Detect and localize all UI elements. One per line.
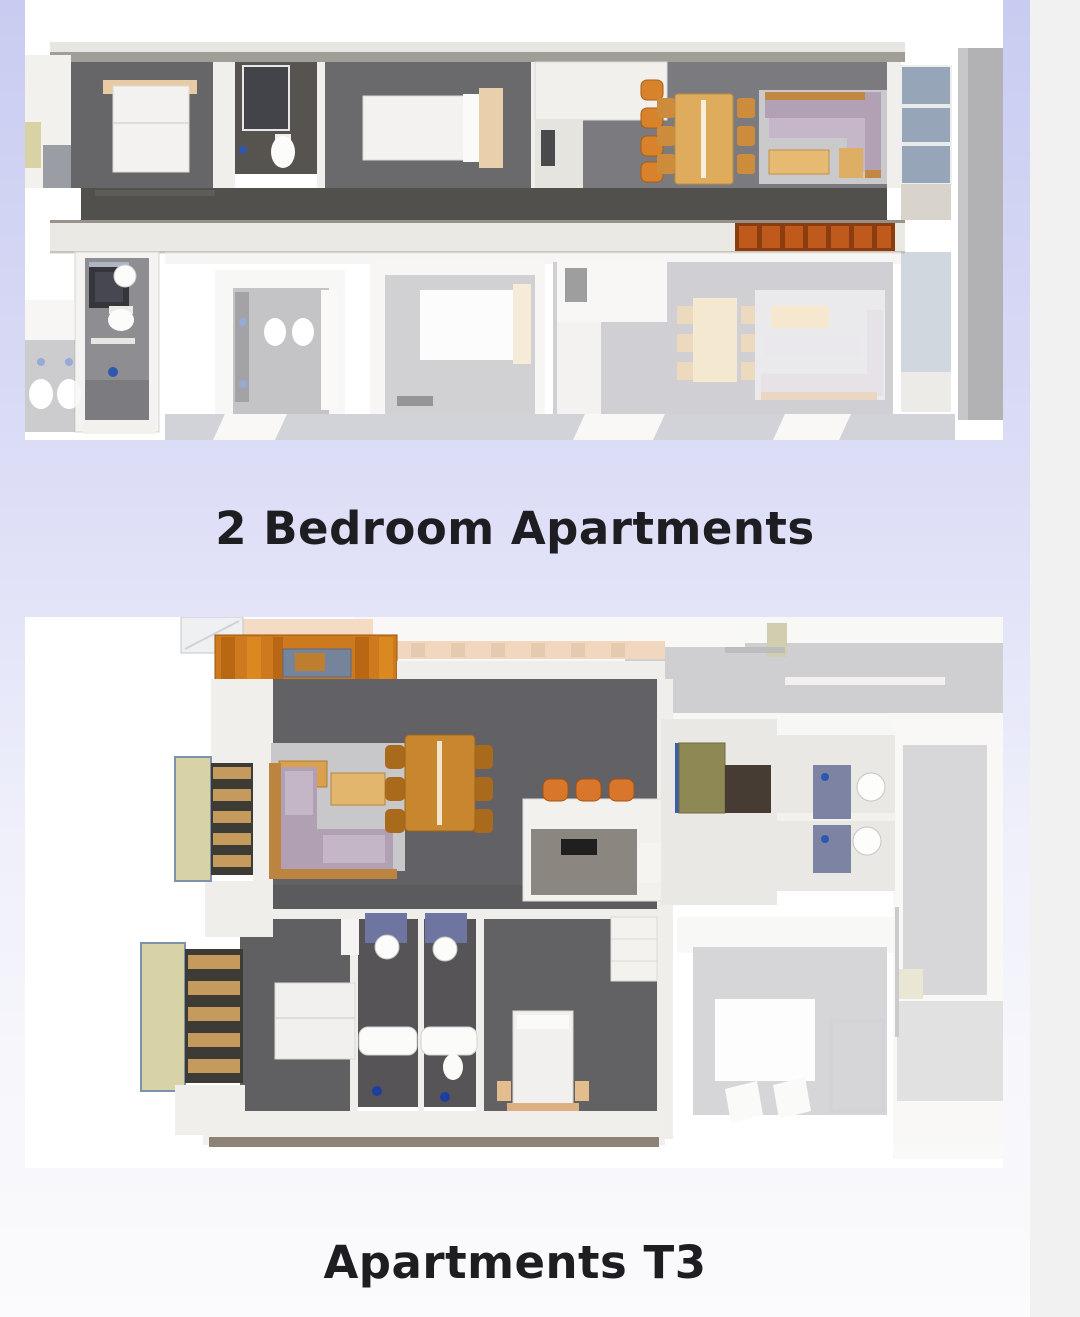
- two-bedroom-plan-svg: [25, 0, 1003, 440]
- balcony-glazing: [901, 66, 951, 220]
- heading-apartments-t3: Apartments T3: [323, 1236, 706, 1289]
- wood-bench: [735, 223, 895, 251]
- top-exterior-wall: [50, 42, 905, 62]
- balcony-shutter-upper: [175, 757, 253, 881]
- bottom-exterior-wall: [203, 1111, 665, 1147]
- side-bathroom: [75, 252, 159, 434]
- neighbor-building-right: [958, 48, 1003, 420]
- hallway-closets: [661, 719, 777, 905]
- dining-table: [657, 94, 755, 184]
- bed-2: [363, 88, 503, 168]
- sofa-area: [759, 90, 887, 184]
- left-edge-adjacent-unit: [25, 55, 71, 188]
- right-gutter: [1030, 0, 1080, 1317]
- caption-band-1: 2 Bedroom Apartments: [0, 440, 1030, 617]
- heading-2-bedroom-apartments: 2 Bedroom Apartments: [215, 502, 814, 555]
- floor-plan-image-2-bedroom: [25, 0, 1003, 440]
- ensuite-bathroom: [777, 735, 895, 891]
- caption-band-2: Apartments T3: [0, 1168, 1030, 1317]
- t3-plan-svg: [25, 617, 1003, 1168]
- page-content-column: 2 Bedroom Apartments: [0, 0, 1030, 1317]
- dining-table-t3: [385, 735, 493, 833]
- living-room-furniture: [269, 743, 405, 879]
- bed-1: [103, 80, 197, 172]
- floor-plan-image-t3: [25, 617, 1003, 1168]
